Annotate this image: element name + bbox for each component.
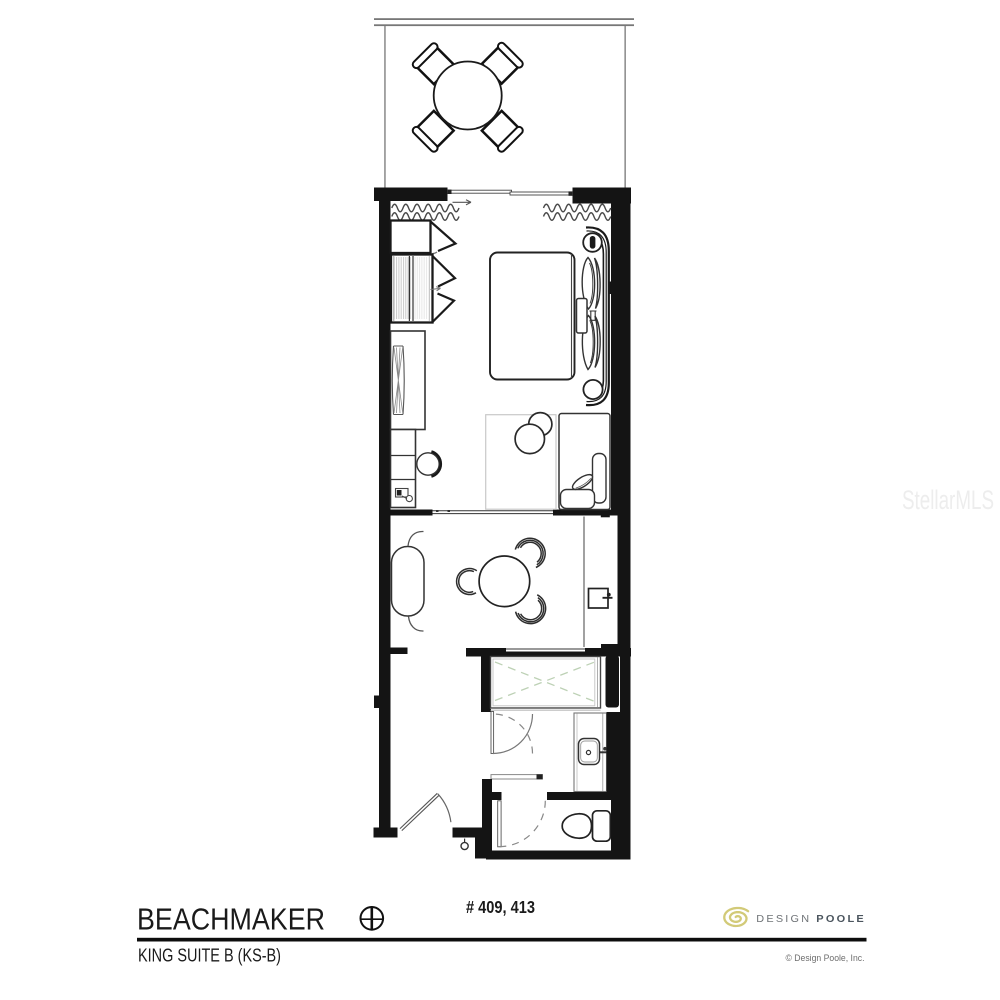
svg-text:KING SUITE B (KS-B): KING SUITE B (KS-B) — [138, 945, 281, 966]
svg-text:© Design Poole, Inc.: © Design Poole, Inc. — [786, 953, 865, 964]
svg-text:StellarMLS: StellarMLS — [902, 485, 994, 515]
svg-text:BEACHMAKER: BEACHMAKER — [137, 903, 325, 937]
svg-text:DESIGN: DESIGN — [756, 914, 811, 925]
svg-text:POOLE: POOLE — [816, 914, 866, 925]
svg-text:# 409, 413: # 409, 413 — [466, 897, 535, 917]
